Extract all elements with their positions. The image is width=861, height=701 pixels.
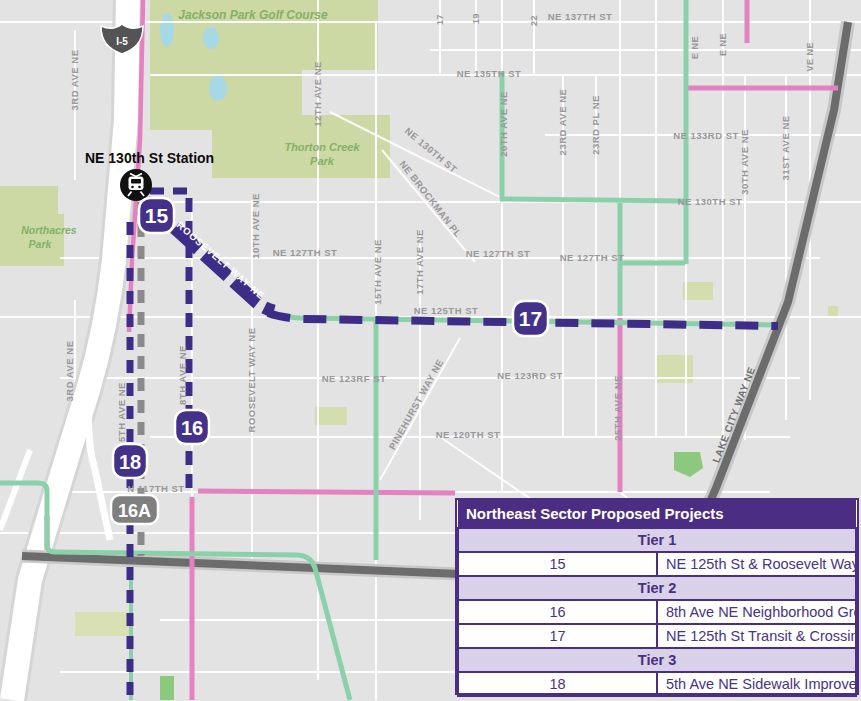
avenue-label-partial: 19 bbox=[471, 13, 481, 24]
route-badge-15: 15 bbox=[139, 198, 174, 233]
avenue-label: 12TH AVE NE bbox=[312, 61, 323, 127]
table-row: 17 NE 125th St Transit & Crossing Improv… bbox=[458, 624, 856, 648]
avenue-label-partial: E NE bbox=[690, 36, 700, 59]
street-label: NE 127TH ST bbox=[560, 252, 625, 263]
street-label: NE 135TH ST bbox=[457, 68, 522, 79]
project-id: 18 bbox=[458, 672, 657, 696]
street-label: NE 127TH ST bbox=[466, 248, 531, 259]
avenue-label-partial: 17 bbox=[435, 14, 445, 25]
table-header-row: Northeast Sector Proposed Projects bbox=[458, 500, 856, 528]
street-label: NE 123RD ST bbox=[497, 370, 563, 381]
avenue-label: 30TH AVE NE bbox=[739, 129, 750, 195]
park-label-thorton-2: Park bbox=[310, 155, 335, 167]
table-title: Northeast Sector Proposed Projects bbox=[458, 500, 856, 528]
avenue-label: 31ST AVE NE bbox=[780, 115, 791, 180]
park-label-jackson: Jackson Park Golf Course bbox=[178, 8, 328, 22]
svg-text:16A: 16A bbox=[118, 501, 151, 521]
avenue-label: 23RD PL NE bbox=[590, 95, 601, 155]
street-label: NE 123RF ST bbox=[322, 373, 387, 384]
park-label-northacres: Northacres bbox=[21, 224, 77, 236]
table-row: 15 NE 125th St & Roosevelt Way NE Street… bbox=[458, 552, 856, 576]
avenue-label: 3RD AVE NE bbox=[64, 341, 75, 402]
street-label: NE 125TH ST bbox=[414, 305, 479, 316]
street-label: NE 130TH ST bbox=[678, 196, 743, 207]
project-name: 8th Ave NE Neighborhood Greenway bbox=[657, 600, 856, 624]
light-rail-station-icon bbox=[120, 169, 152, 201]
tier-row: Tier 2 bbox=[458, 576, 856, 600]
street-label: NE 133RD ST bbox=[673, 130, 739, 141]
tier-row: Tier 3 bbox=[458, 648, 856, 672]
project-name: 5th Ave NE Sidewalk Improvements bbox=[657, 672, 856, 696]
project-id: 16 bbox=[458, 600, 657, 624]
avenue-label: 5TH AVE NE bbox=[116, 382, 127, 442]
proposed-projects-table: Northeast Sector Proposed Projects Tier … bbox=[455, 498, 859, 695]
avenue-label: 25TH AVE NE bbox=[612, 375, 623, 441]
svg-text:I-5: I-5 bbox=[116, 36, 128, 47]
avenue-label-partial: VE NE bbox=[805, 42, 815, 72]
avenue-label-partial: E NE bbox=[718, 33, 728, 56]
tier-row: Tier 1 bbox=[458, 528, 856, 552]
svg-text:15: 15 bbox=[145, 204, 169, 227]
table-row: 18 5th Ave NE Sidewalk Improvements bbox=[458, 672, 856, 696]
project-name: NE 125th St Transit & Crossing Improveme… bbox=[657, 624, 856, 648]
project-id: 17 bbox=[458, 624, 657, 648]
street-label: NE 137TH ST bbox=[548, 11, 613, 22]
avenue-label: 8TH AVE NE bbox=[177, 345, 188, 405]
avenue-label: 3RD AVE NE bbox=[69, 50, 80, 111]
avenue-label: 23RD AVE NE bbox=[557, 89, 568, 156]
svg-text:16: 16 bbox=[181, 417, 203, 439]
route-badge-18: 18 bbox=[113, 444, 147, 478]
avenue-label: ROOSEVELT WAY NE bbox=[246, 328, 257, 433]
park-label-northacres-2: Park bbox=[29, 238, 53, 250]
street-label: N 117TH ST bbox=[127, 483, 184, 494]
avenue-label: 17TH AVE NE bbox=[414, 229, 425, 295]
route-badge-17: 17 bbox=[513, 301, 548, 336]
route-badge-16: 16 bbox=[175, 410, 209, 444]
route-badge-16a: 16A bbox=[111, 495, 158, 524]
svg-text:17: 17 bbox=[519, 307, 542, 330]
avenue-label: 20TH AVE NE bbox=[498, 91, 509, 157]
park-label-thorton: Thorton Creek bbox=[284, 141, 360, 153]
avenue-label: 10TH AVE NE bbox=[250, 193, 261, 259]
project-id: 15 bbox=[458, 552, 657, 576]
street-label: NE 127TH ST bbox=[273, 247, 338, 258]
avenue-label: 15TH AVE NE bbox=[372, 239, 383, 305]
project-name: NE 125th St & Roosevelt Way NE Street Re… bbox=[657, 552, 856, 576]
station-label: NE 130th St Station bbox=[85, 150, 214, 166]
table-row: 16 8th Ave NE Neighborhood Greenway bbox=[458, 600, 856, 624]
avenue-label-partial: 22 bbox=[529, 15, 539, 26]
svg-text:18: 18 bbox=[119, 451, 141, 473]
street-label: NE 120TH ST bbox=[436, 429, 501, 440]
